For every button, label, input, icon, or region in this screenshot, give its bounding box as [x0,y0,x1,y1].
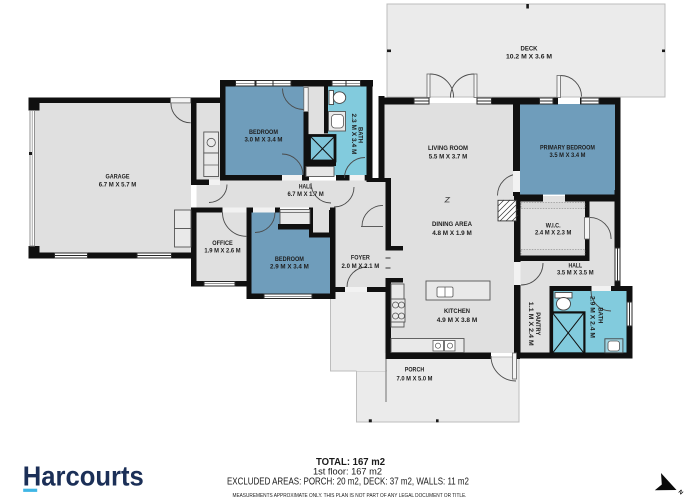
svg-text:PRIMARY BEDROOM: PRIMARY BEDROOM [540,145,595,152]
svg-text:FOYER: FOYER [351,255,370,262]
svg-text:2.9 M X 3.4 M: 2.9 M X 3.4 M [270,264,309,271]
svg-text:BEDROOM: BEDROOM [275,256,304,263]
svg-text:DECK: DECK [521,45,538,52]
svg-text:HALL: HALL [299,183,313,190]
svg-text:Harcourts: Harcourts [23,461,144,492]
svg-text:3.5 M X 3.4 M: 3.5 M X 3.4 M [550,152,586,159]
svg-text:2.4 M X 2.3 M: 2.4 M X 2.3 M [535,230,572,237]
svg-text:2.0 M X 2.1 M: 2.0 M X 2.1 M [342,263,380,270]
svg-text:5.5 M X 3.7 M: 5.5 M X 3.7 M [429,153,468,160]
svg-text:3.5 M X 3.5 M: 3.5 M X 3.5 M [557,270,594,277]
svg-text:BATH: BATH [597,307,604,323]
svg-text:10.2 M X 3.6 M: 10.2 M X 3.6 M [506,53,552,60]
svg-text:1st floor: 167 m2: 1st floor: 167 m2 [313,467,382,477]
svg-text:6.7 M X 5.7 M: 6.7 M X 5.7 M [99,181,137,188]
svg-text:PORCH: PORCH [405,367,425,374]
svg-text:2.9 M X 2.4 M: 2.9 M X 2.4 M [589,296,596,338]
svg-text:PANTRY: PANTRY [534,312,541,336]
svg-text:DINING AREA: DINING AREA [432,221,472,228]
svg-text:1.9 M X 2.6 M: 1.9 M X 2.6 M [204,247,240,254]
svg-text:EXCLUDED AREAS: PORCH: 20 m2,: EXCLUDED AREAS: PORCH: 20 m2, DECK: 37 m… [227,477,469,488]
svg-text:MEASUREMENTS APPROXIMATE ONLY.: MEASUREMENTS APPROXIMATE ONLY. THIS PLAN… [233,493,467,499]
svg-text:4.9 M X 3.8 M: 4.9 M X 3.8 M [437,317,478,324]
svg-text:KITCHEN: KITCHEN [444,308,470,315]
svg-text:GARAGE: GARAGE [106,174,131,181]
svg-text:2.3 M X 3.4 M: 2.3 M X 3.4 M [350,114,357,155]
svg-text:6.7 M X 1.7 M: 6.7 M X 1.7 M [287,191,323,198]
svg-text:LIVING ROOM: LIVING ROOM [428,145,468,152]
svg-text:4.8 M X 1.9 M: 4.8 M X 1.9 M [432,230,472,237]
svg-text:BEDROOM: BEDROOM [249,129,278,136]
svg-text:1.1 M X 2.4 M: 1.1 M X 2.4 M [527,302,534,346]
svg-text:7.0 M X 5.0 M: 7.0 M X 5.0 M [397,375,433,382]
svg-text:OFFICE: OFFICE [212,240,233,247]
svg-text:3.0 M X 3.4 M: 3.0 M X 3.4 M [245,136,283,143]
